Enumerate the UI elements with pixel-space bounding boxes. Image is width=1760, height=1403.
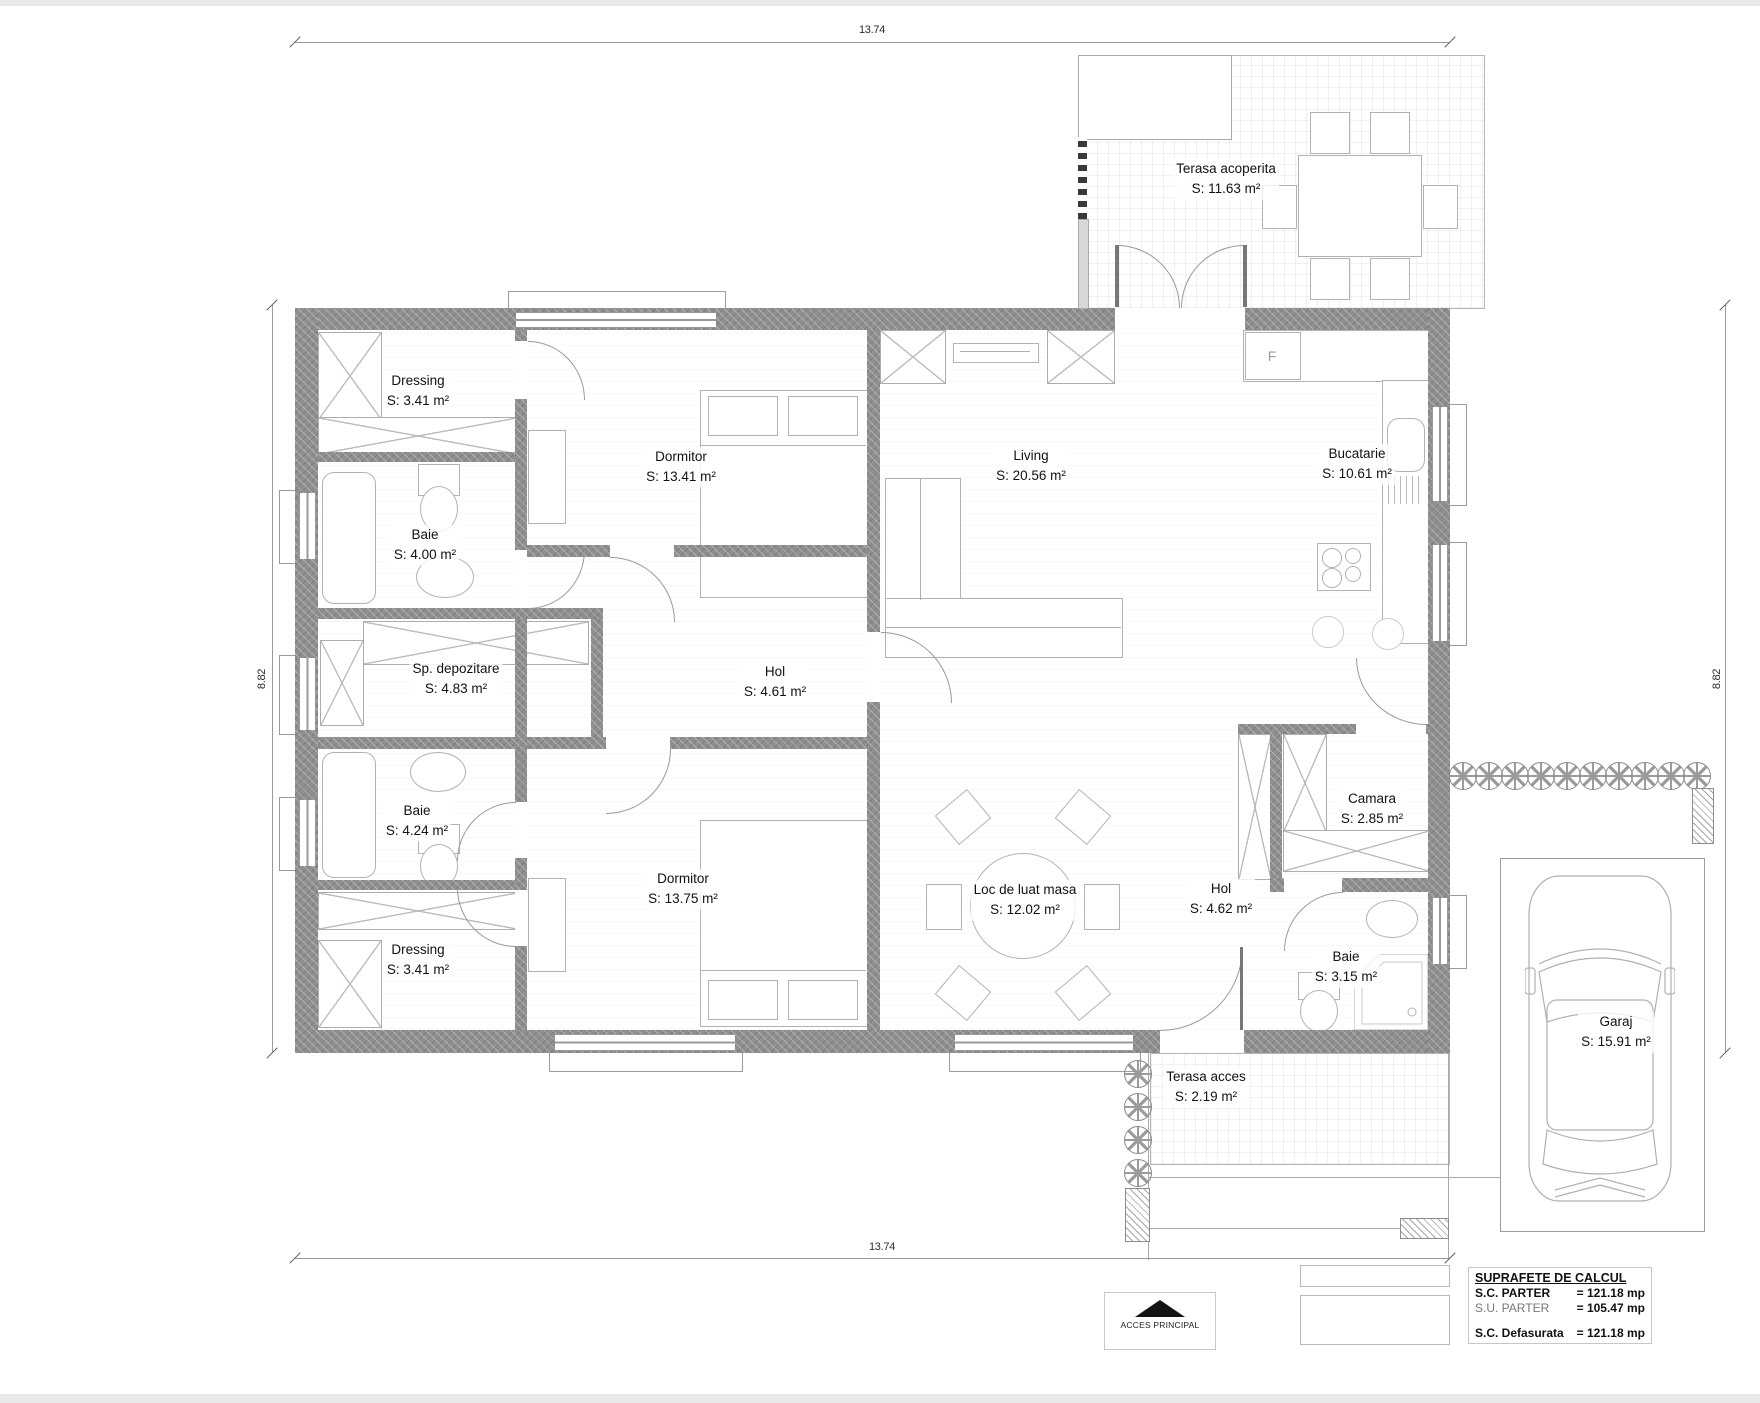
room-label-depozitare: Sp. depozitareS: 4.83 m²: [409, 659, 502, 700]
wardrobe: [1238, 734, 1272, 880]
dining-chair: [926, 884, 962, 930]
terrace-chair: [1310, 258, 1350, 300]
window-bucatarie-1: [1432, 407, 1448, 501]
room-label-dressing-1: DressingS: 3.41 m²: [384, 371, 452, 412]
stool: [1312, 616, 1344, 648]
room-label-hol-1: HolS: 4.61 m²: [741, 662, 809, 703]
terrace-chair: [1370, 258, 1410, 300]
sink: [1366, 900, 1418, 938]
tv-line: [960, 351, 1030, 352]
dim-line-left: [272, 305, 273, 1053]
window-sill: [1449, 404, 1467, 506]
tv-console: [953, 343, 1039, 363]
sofa-cushion-line: [885, 627, 1121, 628]
room-label-terasa-acces: Terasa accesS: 2.19 m²: [1163, 1067, 1249, 1108]
pillow: [708, 980, 778, 1020]
desk: [528, 430, 566, 524]
wardrobe: [318, 417, 518, 455]
window-sill: [949, 1052, 1141, 1072]
tv-cabinet: [880, 330, 946, 384]
window-baie1: [299, 493, 316, 559]
burner: [1322, 548, 1342, 568]
terrace-table: [1298, 155, 1422, 257]
shrub: [1605, 762, 1633, 790]
terrace-chair: [1370, 112, 1410, 154]
pillow: [788, 980, 858, 1020]
access-label: ACCES PRINCIPAL: [1105, 1320, 1215, 1330]
window-bucatarie-2: [1432, 545, 1448, 641]
shrub: [1631, 762, 1659, 790]
terrace-glazed-wall: [1078, 137, 1087, 219]
room-label-garaj: GarajS: 15.91 m²: [1578, 1012, 1654, 1053]
window-dormitor2: [555, 1034, 735, 1051]
wall-outer-bottom: [295, 1030, 1450, 1053]
burner: [1345, 566, 1361, 582]
shrub: [1475, 762, 1503, 790]
north-arrow-icon: [1135, 1300, 1185, 1317]
bathtub: [322, 752, 376, 878]
shrub: [1124, 1093, 1152, 1121]
room-label-hol-2: HolS: 4.62 m²: [1187, 879, 1255, 920]
top-screen-edge: [0, 0, 1760, 6]
window-dining: [955, 1034, 1133, 1051]
dim-top-label: 13.74: [856, 24, 888, 36]
window-sill: [1449, 542, 1467, 646]
sofa-left: [885, 478, 961, 602]
legend-row: S.C. Defasurata= 121.18 mp: [1475, 1326, 1645, 1341]
wall-below-baie1: [318, 608, 603, 619]
room-label-baie-2: BaieS: 4.24 m²: [383, 801, 451, 842]
sofa-cushion-line: [920, 478, 921, 600]
dim-left-label: 8.82: [256, 666, 268, 692]
floor-plan-canvas: 13.74 13.74 8.82 8.82: [0, 0, 1760, 1403]
shrub: [1657, 762, 1685, 790]
window-dormitor1: [516, 312, 716, 328]
room-label-camara: CamaraS: 2.85 m²: [1338, 789, 1406, 830]
shrub: [1683, 762, 1711, 790]
walkway-line: [1148, 1228, 1400, 1229]
shrub: [1124, 1159, 1152, 1187]
pillow: [708, 396, 778, 436]
blanket-line: [700, 970, 866, 971]
window-depozitare: [299, 658, 316, 730]
legend-title: SUPRAFETE DE CALCUL: [1475, 1271, 1645, 1285]
french-door-right-leaf: [1243, 245, 1247, 307]
wall-outer-top: [295, 308, 1450, 330]
burner: [1345, 548, 1361, 564]
room-label-bucatarie: BucatarieS: 10.61 m²: [1319, 444, 1395, 485]
fence-post: [1692, 788, 1714, 844]
shrub: [1124, 1126, 1152, 1154]
fridge-label: F: [1268, 348, 1277, 364]
walkway-step: [1300, 1295, 1450, 1345]
areas-legend: SUPRAFETE DE CALCUL S.C. PARTER= 121.18 …: [1468, 1267, 1652, 1344]
dim-bottom-label: 13.74: [866, 1241, 898, 1253]
gate-post: [1400, 1218, 1449, 1239]
walkway-line: [1148, 1177, 1560, 1178]
room-label-terasa-acoperita: Terasa acoperitaS: 11.63 m²: [1173, 159, 1279, 200]
terrace-chair: [1310, 112, 1350, 154]
shrub: [1553, 762, 1581, 790]
desk: [528, 878, 566, 972]
sink: [410, 752, 466, 792]
walkway-step: [1300, 1265, 1450, 1287]
bathtub: [322, 472, 376, 604]
window-baie2: [299, 800, 316, 866]
pillow: [788, 396, 858, 436]
bottom-screen-edge: [0, 1394, 1760, 1403]
wall-hol2-right: [1270, 734, 1282, 878]
main-access-marker: ACCES PRINCIPAL: [1104, 1292, 1216, 1350]
terrace-roof-step: [1078, 55, 1232, 140]
stool: [1372, 618, 1404, 650]
storage-shelf: [320, 640, 364, 726]
terrace-post: [1078, 219, 1089, 309]
room-label-dormitor-1: DormitorS: 13.41 m²: [643, 447, 719, 488]
entry-door-leaf: [1240, 947, 1243, 1030]
room-label-dining: Loc de luat masaS: 12.02 m²: [971, 880, 1080, 921]
pantry-shelf: [1283, 734, 1327, 832]
shrub: [1501, 762, 1529, 790]
wardrobe: [318, 332, 382, 420]
dining-chair: [1084, 884, 1120, 930]
dim-right-label: 8.82: [1711, 666, 1723, 692]
shrub: [1124, 1060, 1152, 1088]
window-baie3: [1432, 898, 1448, 964]
legend-row: S.U. PARTER= 105.47 mp: [1475, 1301, 1645, 1316]
dim-line-top: [295, 42, 1450, 43]
room-label-baie-3: BaieS: 3.15 m²: [1312, 947, 1380, 988]
blanket-line: [700, 445, 866, 446]
shrub: [1579, 762, 1607, 790]
room-label-dormitor-2: DormitorS: 13.75 m²: [645, 869, 721, 910]
tv-cabinet: [1047, 330, 1115, 384]
dim-line-bottom: [295, 1258, 1450, 1259]
gate-post: [1125, 1188, 1150, 1242]
pantry-shelf: [1283, 830, 1430, 872]
dim-line-right: [1725, 305, 1726, 1053]
room-label-baie-1: BaieS: 4.00 m²: [391, 525, 459, 566]
room-label-dressing-2: DressingS: 3.41 m²: [384, 940, 452, 981]
burner: [1322, 568, 1342, 588]
toilet-bowl: [1300, 990, 1338, 1032]
shrub: [1527, 762, 1555, 790]
wall-below-dressing1: [318, 452, 515, 462]
window-sill: [1449, 895, 1467, 969]
shrub: [1449, 762, 1477, 790]
wall-hol-bottom: [527, 737, 867, 749]
terrace-chair: [1423, 185, 1458, 229]
window-sill: [549, 1052, 743, 1072]
wardrobe: [318, 940, 382, 1028]
french-door-left-leaf: [1115, 245, 1119, 307]
room-label-living: LivingS: 20.56 m²: [993, 446, 1069, 487]
legend-row: S.C. PARTER= 121.18 mp: [1475, 1286, 1645, 1301]
wall-depozitare-right: [591, 619, 603, 737]
